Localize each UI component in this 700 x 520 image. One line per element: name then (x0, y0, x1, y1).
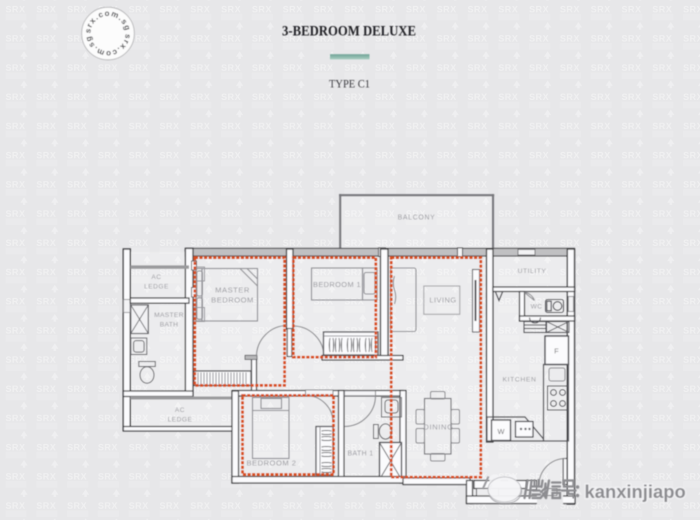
svg-text:MASTER: MASTER (215, 286, 250, 295)
svg-text:LEDGE: LEDGE (144, 284, 169, 291)
svg-text:UTILITY: UTILITY (518, 268, 547, 275)
svg-text:MASTER: MASTER (154, 312, 184, 319)
svg-text:LEDGE: LEDGE (168, 417, 193, 424)
svg-text:BATH: BATH (160, 322, 179, 329)
svg-text:kanxinjiapo: kanxinjiapo (585, 481, 686, 502)
svg-text:BEDROOM 2: BEDROOM 2 (246, 459, 296, 468)
svg-text:F: F (554, 347, 559, 356)
svg-text:BALCONY: BALCONY (398, 215, 436, 222)
svg-text:LIVING: LIVING (429, 296, 456, 305)
svg-text:3-BEDROOM DELUXE: 3-BEDROOM DELUXE (282, 24, 416, 40)
svg-text:KITCHEN: KITCHEN (502, 377, 536, 384)
svg-text:W: W (498, 427, 505, 436)
svg-text:BATH 1: BATH 1 (347, 451, 373, 458)
svg-text:BEDROOM 1: BEDROOM 1 (313, 280, 361, 289)
svg-text:AC: AC (151, 274, 161, 281)
svg-text:WC: WC (531, 304, 543, 311)
svg-text:TYPE C1: TYPE C1 (329, 79, 370, 91)
svg-text:DINING: DINING (423, 423, 453, 432)
svg-text:AC: AC (175, 407, 185, 414)
svg-text:BEDROOM: BEDROOM (211, 296, 254, 305)
